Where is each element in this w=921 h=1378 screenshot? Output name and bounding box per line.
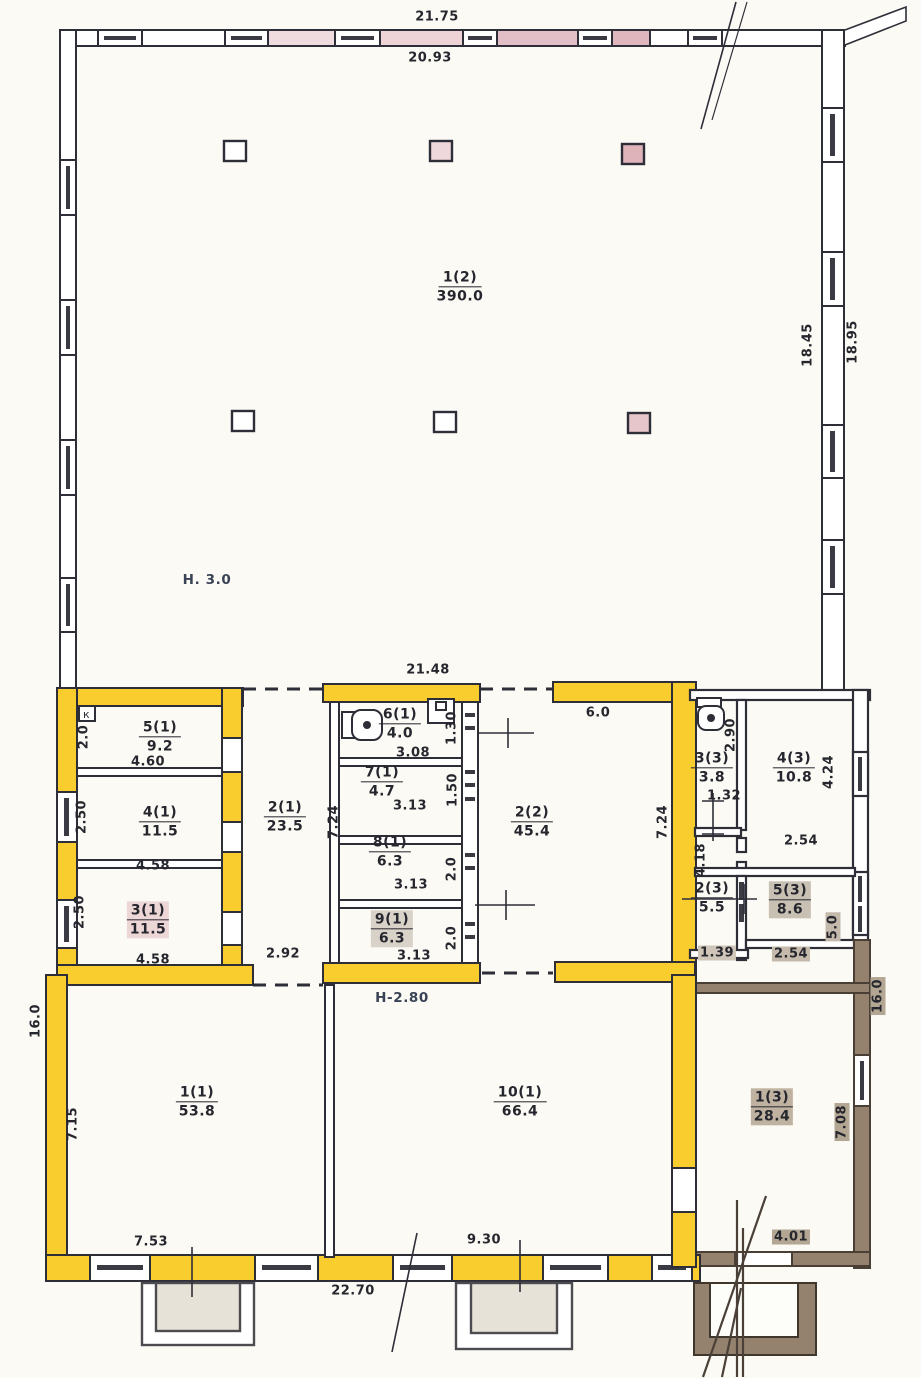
height-note: Н-2.80: [375, 990, 429, 1006]
room-area: 66.4: [500, 1103, 541, 1121]
room-label-2(3): 2(3)5.5: [691, 879, 733, 916]
room-label-5(3): 5(3)8.6: [769, 881, 811, 918]
dimension-label: 2.0: [77, 723, 92, 752]
dimension-label: 7.24: [327, 803, 342, 841]
room-number: 3(1): [127, 901, 169, 920]
dimension-label: 18.45: [801, 321, 816, 369]
room-number: 4(3): [773, 749, 815, 768]
dimension-label: 2.50: [73, 893, 88, 931]
dimension-label: 2.54: [782, 834, 820, 849]
dimension-label: 4.24: [822, 753, 837, 791]
dimension-label: 1.30: [445, 709, 460, 747]
dimension-label: 4.58: [134, 953, 172, 968]
room-label-1(3): 1(3)28.4: [751, 1088, 793, 1125]
dimension-label: 18.95: [846, 318, 861, 366]
dimension-label: 2.54: [772, 947, 810, 962]
dimension-label: 9.30: [465, 1233, 503, 1248]
room-label-3(1): 3(1)11.5: [127, 901, 169, 938]
room-area: 53.8: [177, 1103, 218, 1121]
room-label-1(1): 1(1)53.8: [176, 1083, 218, 1120]
dimension-label: 21.48: [404, 663, 452, 678]
dimension-label: 16.0: [871, 977, 886, 1015]
room-number: 1(1): [176, 1083, 218, 1102]
room-label-1(2): 1(2)390.0: [435, 268, 486, 305]
dimension-label: 5.0: [826, 913, 841, 942]
room-area: 45.4: [512, 823, 553, 841]
room-area: 28.4: [752, 1108, 793, 1126]
room-area: 9.2: [145, 738, 175, 756]
height-note: Н. 3.0: [183, 572, 232, 588]
room-area: 23.5: [265, 818, 306, 836]
dimension-label: 4.58: [134, 859, 172, 874]
dimension-label: 4.18: [694, 841, 709, 879]
room-number: 8(1): [369, 833, 411, 852]
dimension-label: 2.92: [264, 947, 302, 962]
dimension-label: 7.08: [835, 1103, 850, 1141]
room-area: 3.8: [697, 769, 727, 787]
room-number: 6(1): [379, 705, 421, 724]
room-number: 1(2): [439, 268, 481, 287]
room-label-3(3): 3(3)3.8: [691, 749, 733, 786]
dimension-label: 3.08: [394, 746, 432, 761]
room-area: 6.3: [377, 930, 407, 948]
room-number: 9(1): [371, 910, 413, 929]
room-label-6(1): 6(1)4.0: [379, 705, 421, 742]
room-area: 11.5: [128, 921, 169, 939]
room-area: 6.3: [375, 853, 405, 871]
dimension-label: 3.13: [395, 949, 433, 964]
room-area: 4.0: [385, 725, 415, 743]
dimension-label: 7.24: [656, 803, 671, 841]
room-area: 10.8: [774, 769, 815, 787]
dimension-label: 1.50: [446, 771, 461, 809]
dimension-label: 21.75: [413, 10, 461, 25]
dimension-label: 2.0: [445, 855, 460, 884]
floor-plan-page: к: [0, 0, 921, 1378]
dimension-label: 2.50: [75, 798, 90, 836]
room-number: 7(1): [361, 763, 403, 782]
dimension-label: 3.13: [391, 799, 429, 814]
room-number: 5(3): [769, 881, 811, 900]
dimension-label: 3.13: [392, 878, 430, 893]
room-label-5(1): 5(1)9.2: [139, 718, 181, 755]
room-area: 5.5: [697, 899, 727, 917]
dimension-label: 2.0: [445, 924, 460, 953]
dimension-label: 4.01: [772, 1230, 810, 1245]
room-number: 4(1): [139, 803, 181, 822]
room-label-10(1): 10(1)66.4: [494, 1083, 547, 1120]
room-number: 5(1): [139, 718, 181, 737]
room-label-4(1): 4(1)11.5: [139, 803, 181, 840]
room-label-8(1): 8(1)6.3: [369, 833, 411, 870]
dimension-label: 4.60: [129, 755, 167, 770]
room-number: 2(1): [264, 798, 306, 817]
room-label-9(1): 9(1)6.3: [371, 910, 413, 947]
plan-labels-layer: 1(2)390.05(1)9.24(1)11.53(1)11.52(1)23.5…: [0, 0, 921, 1378]
dimension-label: 1.39: [698, 946, 736, 961]
dimension-label: 2.90: [724, 716, 739, 754]
room-area: 8.6: [775, 901, 805, 919]
room-number: 2(3): [691, 879, 733, 898]
room-area: 390.0: [435, 288, 486, 306]
room-area: 11.5: [140, 823, 181, 841]
room-number: 1(3): [751, 1088, 793, 1107]
room-label-2(2): 2(2)45.4: [511, 803, 553, 840]
room-label-7(1): 7(1)4.7: [361, 763, 403, 800]
room-number: 2(2): [511, 803, 553, 822]
dimension-label: 6.0: [584, 706, 613, 721]
room-label-2(1): 2(1)23.5: [264, 798, 306, 835]
dimension-label: 7.15: [66, 1105, 81, 1143]
dimension-label: 7.53: [132, 1235, 170, 1250]
dimension-label: 1.32: [705, 789, 743, 804]
dimension-label: 20.93: [406, 51, 454, 66]
room-label-4(3): 4(3)10.8: [773, 749, 815, 786]
room-number: 10(1): [494, 1083, 547, 1102]
dimension-label: 16.0: [29, 1002, 44, 1040]
dimension-label: 22.70: [329, 1284, 377, 1299]
